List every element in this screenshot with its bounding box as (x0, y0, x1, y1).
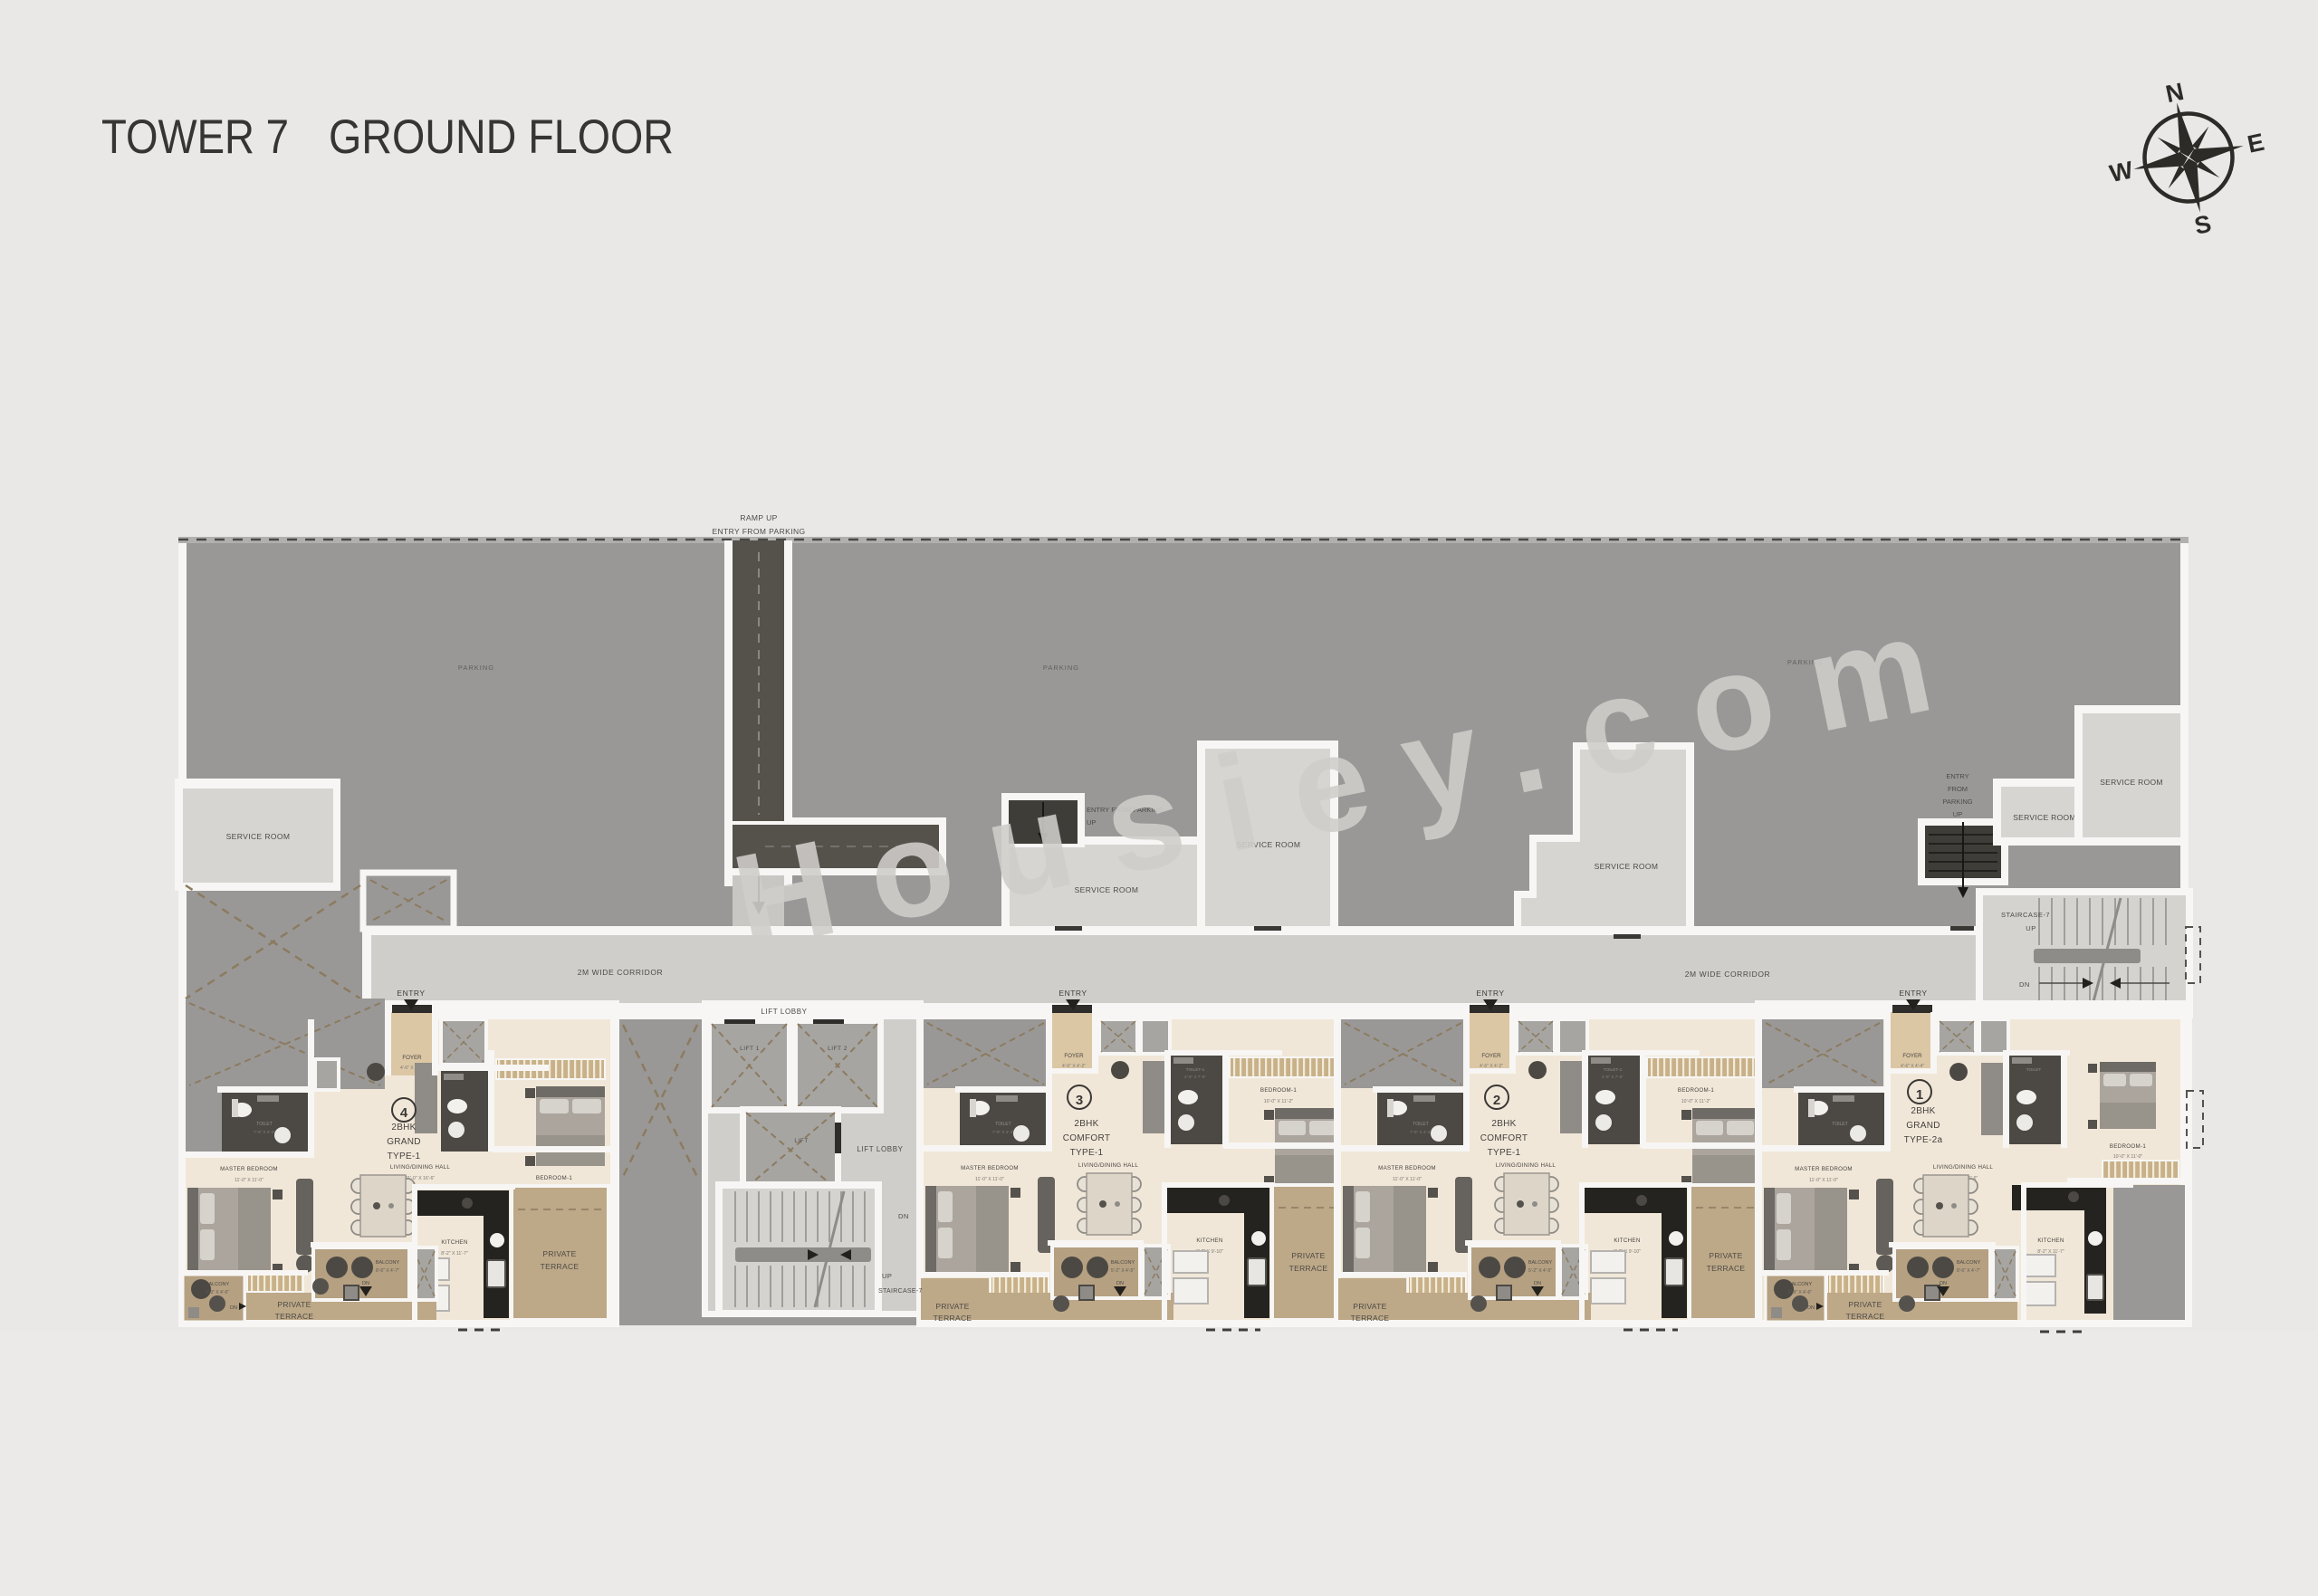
svg-text:ENTRY: ENTRY (1899, 989, 1927, 998)
svg-text:MASTER BEDROOM: MASTER BEDROOM (1795, 1166, 1853, 1172)
svg-text:2BHK: 2BHK (1074, 1119, 1098, 1129)
svg-text:DN: DN (230, 1305, 237, 1311)
svg-text:TOWER 7GROUND FLOOR: TOWER 7GROUND FLOOR (101, 110, 674, 164)
svg-text:BALCONY: BALCONY (376, 1260, 400, 1266)
svg-text:LIFT: LIFT (794, 1138, 808, 1144)
svg-text:8'-6" X 4'-7": 8'-6" X 4'-7" (1957, 1268, 1980, 1274)
svg-text:TOILET: TOILET (1832, 1122, 1847, 1127)
svg-text:SERVICE ROOM: SERVICE ROOM (2100, 778, 2163, 787)
svg-text:LIVING/DINING HALL: LIVING/DINING HALL (390, 1164, 451, 1171)
svg-text:TOILET: TOILET (2026, 1067, 2042, 1073)
svg-text:BEDROOM-1: BEDROOM-1 (536, 1175, 572, 1181)
svg-text:BALCONY: BALCONY (206, 1282, 230, 1287)
svg-text:1: 1 (1916, 1087, 1923, 1103)
svg-text:TOILET: TOILET (256, 1122, 272, 1127)
svg-text:5'-9" X 4'-6": 5'-9" X 4'-6" (206, 1290, 229, 1295)
svg-text:5'-9" X 4'-6": 5'-9" X 4'-6" (1788, 1290, 1812, 1295)
svg-text:PARKING: PARKING (1043, 664, 1079, 672)
svg-text:RAMP UP: RAMP UP (740, 513, 777, 522)
svg-text:BEDROOM-1: BEDROOM-1 (2110, 1143, 2146, 1150)
svg-text:2BHK: 2BHK (1491, 1119, 1516, 1129)
svg-text:8'-6" X 4'-7": 8'-6" X 4'-7" (376, 1268, 399, 1274)
svg-text:ENTRY: ENTRY (397, 989, 425, 998)
svg-text:GRAND: GRAND (387, 1137, 421, 1147)
svg-text:KITCHEN: KITCHEN (441, 1239, 467, 1246)
svg-text:LIFT LOBBY: LIFT LOBBY (857, 1145, 903, 1153)
svg-text:ENTRY: ENTRY (1476, 989, 1504, 998)
svg-text:LIFT 2: LIFT 2 (828, 1046, 848, 1052)
svg-text:TYPE-1: TYPE-1 (1488, 1148, 1521, 1158)
svg-text:DN: DN (362, 1281, 369, 1286)
svg-text:COMFORT: COMFORT (1063, 1133, 1110, 1143)
svg-text:GRAND: GRAND (1906, 1121, 1940, 1131)
svg-text:FOYER: FOYER (402, 1055, 422, 1061)
svg-text:2: 2 (1493, 1093, 1500, 1108)
svg-text:2M WIDE CORRIDOR: 2M WIDE CORRIDOR (578, 968, 664, 977)
svg-text:SERVICE ROOM: SERVICE ROOM (226, 832, 291, 841)
svg-text:PRIVATE: PRIVATE (542, 1249, 576, 1258)
svg-text:TERRACE: TERRACE (541, 1262, 579, 1271)
svg-text:2BHK: 2BHK (1911, 1106, 1935, 1116)
svg-text:LIFT 1: LIFT 1 (740, 1046, 760, 1052)
svg-text:UP: UP (2026, 924, 2035, 932)
svg-text:STAIRCASE-7: STAIRCASE-7 (878, 1288, 923, 1295)
svg-text:11'-0" X 11'-0": 11'-0" X 11'-0" (1809, 1178, 1838, 1183)
svg-text:PARKING: PARKING (1942, 798, 1972, 806)
svg-text:TYPE-1: TYPE-1 (1070, 1148, 1104, 1158)
svg-text:MASTER BEDROOM: MASTER BEDROOM (220, 1166, 278, 1172)
svg-text:PARKING: PARKING (458, 664, 494, 672)
svg-text:2M WIDE CORRIDOR: 2M WIDE CORRIDOR (1685, 970, 1771, 979)
svg-text:TYPE-2a: TYPE-2a (1904, 1135, 1943, 1145)
svg-text:3: 3 (1076, 1093, 1083, 1108)
svg-text:STAIRCASE-7: STAIRCASE-7 (2001, 911, 2050, 919)
svg-text:TERRACE: TERRACE (1846, 1312, 1885, 1321)
svg-text:10'-0" X 11'-0": 10'-0" X 11'-0" (2113, 1154, 2143, 1160)
svg-text:FOYER: FOYER (1902, 1053, 1922, 1059)
svg-text:PRIVATE: PRIVATE (1848, 1300, 1882, 1309)
svg-text:LIFT LOBBY: LIFT LOBBY (761, 1008, 807, 1016)
svg-text:ENTRY: ENTRY (1058, 989, 1087, 998)
svg-text:LIVING/DINING HALL: LIVING/DINING HALL (1933, 1164, 1994, 1171)
svg-text:KITCHEN: KITCHEN (2037, 1238, 2064, 1244)
svg-text:BALCONY: BALCONY (1957, 1260, 1981, 1266)
svg-text:2BHK: 2BHK (391, 1123, 416, 1132)
svg-text:4: 4 (400, 1105, 408, 1121)
svg-text:DN: DN (1940, 1281, 1947, 1286)
svg-text:BALCONY: BALCONY (1788, 1282, 1813, 1287)
svg-text:TYPE-1: TYPE-1 (388, 1152, 421, 1161)
svg-text:11'-0" X 11'-0": 11'-0" X 11'-0" (235, 1178, 263, 1183)
svg-text:FROM: FROM (1948, 785, 1968, 793)
svg-text:ENTRY FROM PARKING: ENTRY FROM PARKING (712, 527, 805, 536)
svg-text:PRIVATE: PRIVATE (277, 1300, 311, 1309)
svg-text:SERVICE ROOM: SERVICE ROOM (2013, 813, 2076, 822)
svg-text:ENTRY: ENTRY (1946, 772, 1968, 780)
svg-text:SERVICE ROOM: SERVICE ROOM (1595, 862, 1659, 871)
svg-text:TERRACE: TERRACE (275, 1312, 314, 1321)
svg-text:DN: DN (898, 1212, 909, 1220)
svg-text:UP: UP (882, 1272, 892, 1280)
svg-text:COMFORT: COMFORT (1480, 1133, 1528, 1143)
svg-text:8'-2" X 11'-7": 8'-2" X 11'-7" (441, 1251, 468, 1257)
svg-text:7'-6" X 4'-4": 7'-6" X 4'-4" (254, 1130, 275, 1134)
svg-text:DN: DN (2019, 980, 2030, 989)
svg-text:UP: UP (1953, 810, 1962, 818)
svg-text:DN: DN (1807, 1305, 1815, 1311)
